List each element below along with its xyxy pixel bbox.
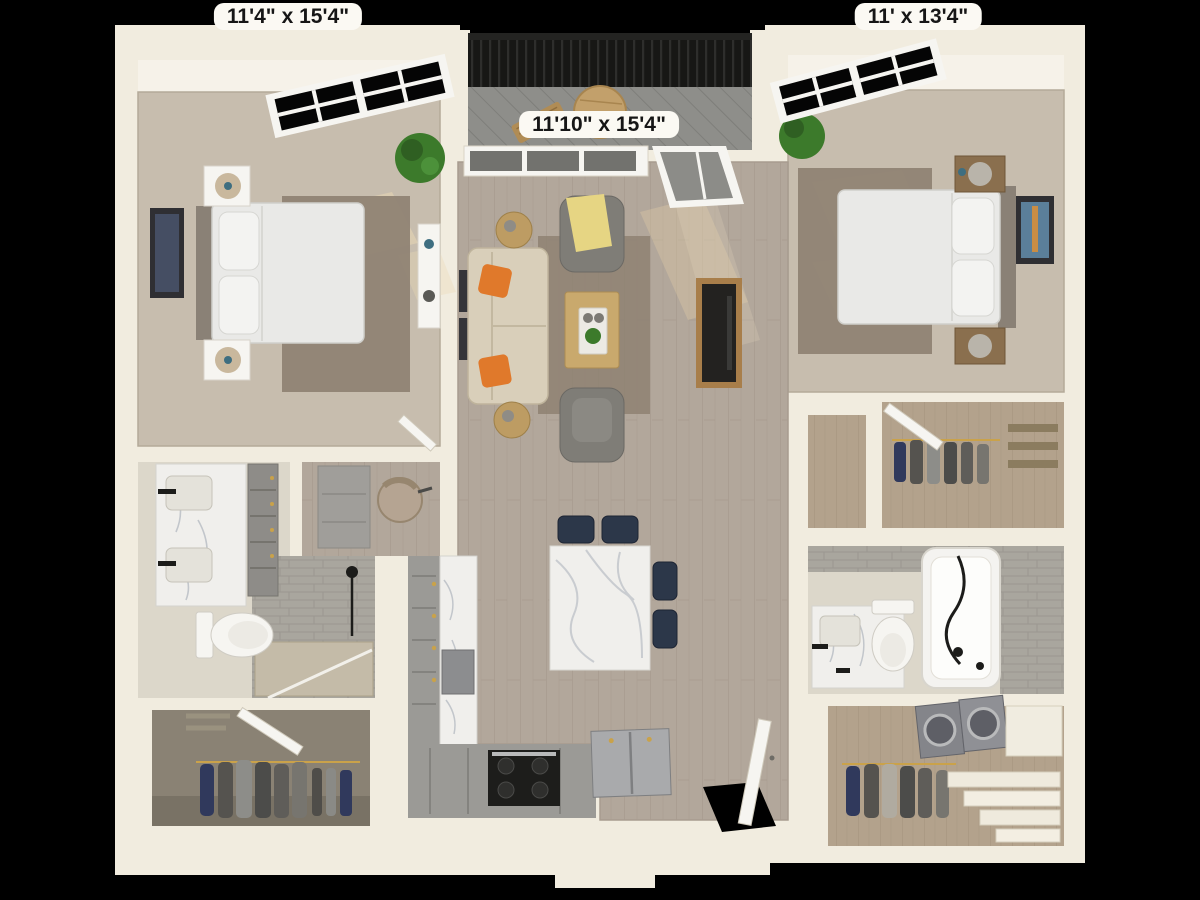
nightstand [955,328,1005,364]
closet-laundry [828,695,1064,846]
hallway-right [808,415,866,528]
laundry-cabinet [1006,706,1062,756]
plant [395,133,445,183]
closet-right [882,402,1064,528]
vanity [156,464,246,606]
bar-stool [653,610,677,648]
bar-stool [653,562,677,600]
hall-floor [808,415,866,528]
wall-oven [442,650,474,694]
stove-handle [492,752,556,756]
door-handle [770,756,775,761]
shower-floor [255,642,373,696]
closet-shelves [1008,424,1058,468]
desk [418,224,440,328]
washer-dryer [915,695,1008,758]
wall-art [1016,196,1054,264]
closet-left [152,708,370,826]
pillow [952,198,994,254]
bar-stool [558,516,594,543]
sink [820,616,860,646]
table-lamp [502,410,514,422]
bathtub [922,548,1000,688]
floor-plan-render: 11'4" x 15'4" 11' x 13'4" 11'10" x 15'4" [0,0,1200,900]
side-table [494,402,530,438]
dimension-label-living-room: 11'10" x 15'4" [519,111,679,138]
tray-plant [585,328,601,344]
pillow [219,212,259,270]
pillow [952,260,994,316]
hallway-nook [302,462,440,556]
nightstand [955,156,1005,192]
dimension-label-bedroom-left: 11'4" x 15'4" [214,3,362,30]
table-lamp [968,162,992,186]
faucet [812,644,828,649]
bathroom-right [808,546,1064,694]
bed [196,203,364,343]
refrigerator [591,729,671,798]
toilet [196,612,273,658]
cabinet [318,466,370,548]
tv-console [696,278,742,388]
linen-cabinet [248,464,278,596]
table-lamp [504,220,516,232]
faucet [158,489,176,494]
faucet [158,561,176,566]
sofa [468,248,548,404]
toilet [872,600,914,671]
faucet [836,668,850,673]
wall-art [150,208,184,298]
tile-wall [1000,546,1064,694]
throw-pillow [477,263,513,299]
coffee-table [565,292,619,368]
armchair [560,194,624,272]
dimension-label-bedroom-right: 11' x 13'4" [855,3,982,30]
nightstand [204,166,250,206]
nightstand [204,340,250,380]
bar-stool [602,516,638,543]
hanging-clothes [200,760,352,818]
stove [488,750,560,806]
side-table [496,212,532,248]
tub-faucet [953,647,963,657]
balcony-railing [468,33,752,87]
table-lamp [968,334,992,358]
throw-pillow [478,354,513,389]
living-dining [458,146,788,820]
balcony-rail-top [468,33,752,40]
pillow [219,276,259,334]
bed [838,186,1016,328]
armchair [560,388,624,462]
